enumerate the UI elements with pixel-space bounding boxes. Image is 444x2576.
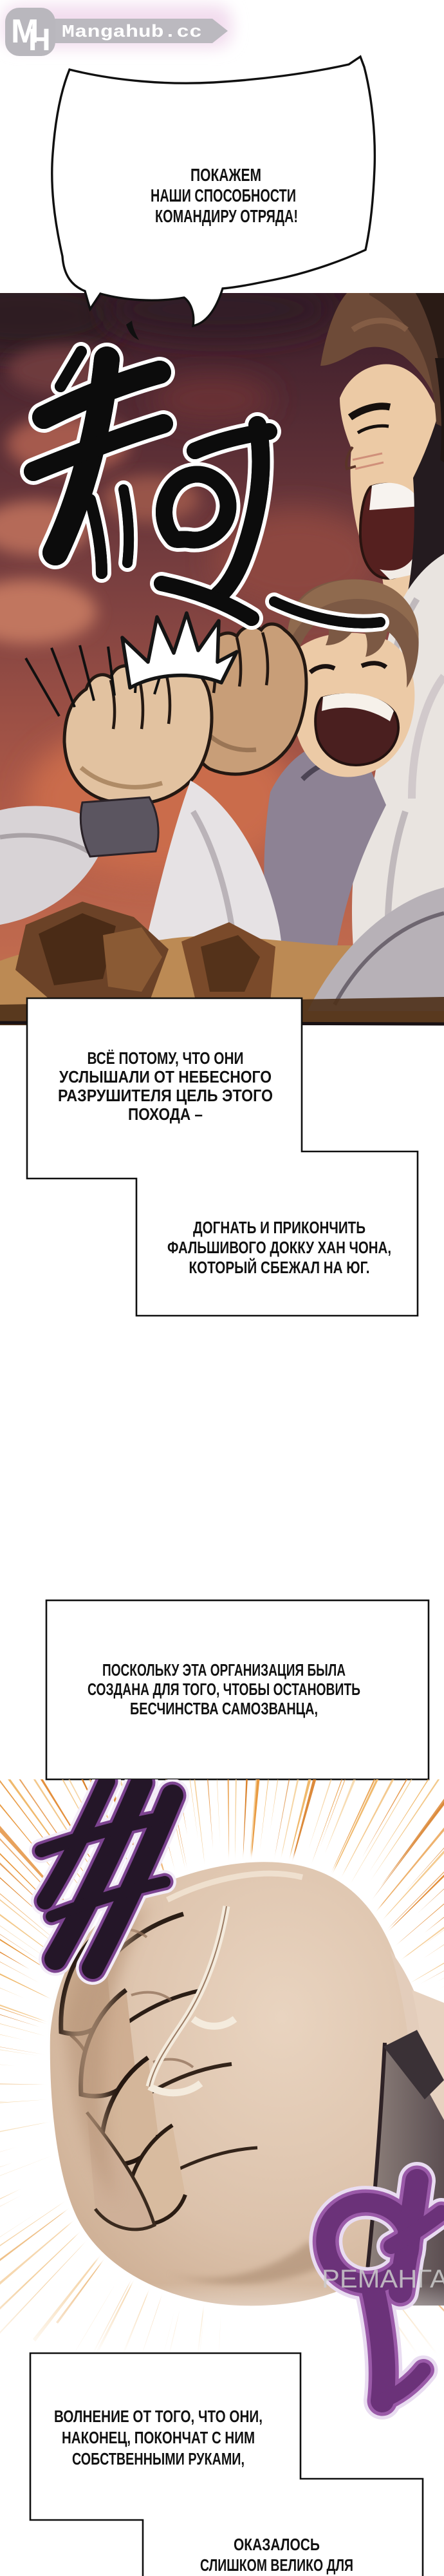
svg-text:ОКАЗАЛОСЬ: ОКАЗАЛОСЬ	[234, 2535, 320, 2554]
svg-text:РАЗРУШИТЕЛЯ ЦЕЛЬ ЭТОГО: РАЗРУШИТЕЛЯ ЦЕЛЬ ЭТОГО	[58, 1086, 273, 1105]
svg-text:ВСЁ ПОТОМУ, ЧТО ОНИ: ВСЁ ПОТОМУ, ЧТО ОНИ	[88, 1048, 244, 1068]
svg-text:СОЗДАНА ДЛЯ ТОГО, ЧТОБЫ ОСТАНО: СОЗДАНА ДЛЯ ТОГО, ЧТОБЫ ОСТАНОВИТЬ	[88, 1680, 360, 1699]
svg-text:УСЛЫШАЛИ ОТ НЕБЕСНОГО: УСЛЫШАЛИ ОТ НЕБЕСНОГО	[59, 1067, 272, 1086]
svg-text:РЕМАНГА: РЕМАНГА	[322, 2265, 444, 2293]
svg-text:НАКОНЕЦ, ПОКОНЧАТ С НИМ: НАКОНЕЦ, ПОКОНЧАТ С НИМ	[62, 2428, 255, 2447]
svg-text:ФАЛЬШИВОГО ДОККУ ХАН ЧОНА,: ФАЛЬШИВОГО ДОККУ ХАН ЧОНА,	[167, 1238, 391, 1257]
svg-text:ПОКАЖЕМ: ПОКАЖЕМ	[190, 165, 261, 185]
svg-text:ВОЛНЕНИЕ ОТ ТОГО, ЧТО ОНИ,: ВОЛНЕНИЕ ОТ ТОГО, ЧТО ОНИ,	[54, 2407, 263, 2426]
svg-text:ДОГНАТЬ И ПРИКОНЧИТЬ: ДОГНАТЬ И ПРИКОНЧИТЬ	[193, 1218, 365, 1237]
svg-text:БЕСЧИНСТВА САМОЗВАНЦА,: БЕСЧИНСТВА САМОЗВАНЦА,	[130, 1699, 318, 1718]
svg-text:Mangahub.cc: Mangahub.cc	[62, 23, 202, 43]
svg-text:ПОСКОЛЬКУ ЭТА ОРГАНИЗАЦИЯ БЫЛА: ПОСКОЛЬКУ ЭТА ОРГАНИЗАЦИЯ БЫЛА	[102, 1660, 346, 1680]
svg-text:НАШИ СПОСОБНОСТИ: НАШИ СПОСОБНОСТИ	[151, 185, 296, 205]
svg-text:ПОХОДА –: ПОХОДА –	[128, 1104, 203, 1124]
svg-text:СЛИШКОМ ВЕЛИКО ДЛЯ: СЛИШКОМ ВЕЛИКО ДЛЯ	[200, 2555, 353, 2575]
svg-text:H: H	[28, 23, 51, 57]
svg-text:КОТОРЫЙ СБЕЖАЛ НА ЮГ.: КОТОРЫЙ СБЕЖАЛ НА ЮГ.	[189, 1258, 370, 1277]
svg-text:СОБСТВЕННЫМИ РУКАМИ,: СОБСТВЕННЫМИ РУКАМИ,	[72, 2449, 245, 2468]
svg-text:КОМАНДИРУ ОТРЯДА!: КОМАНДИРУ ОТРЯДА!	[155, 206, 298, 226]
